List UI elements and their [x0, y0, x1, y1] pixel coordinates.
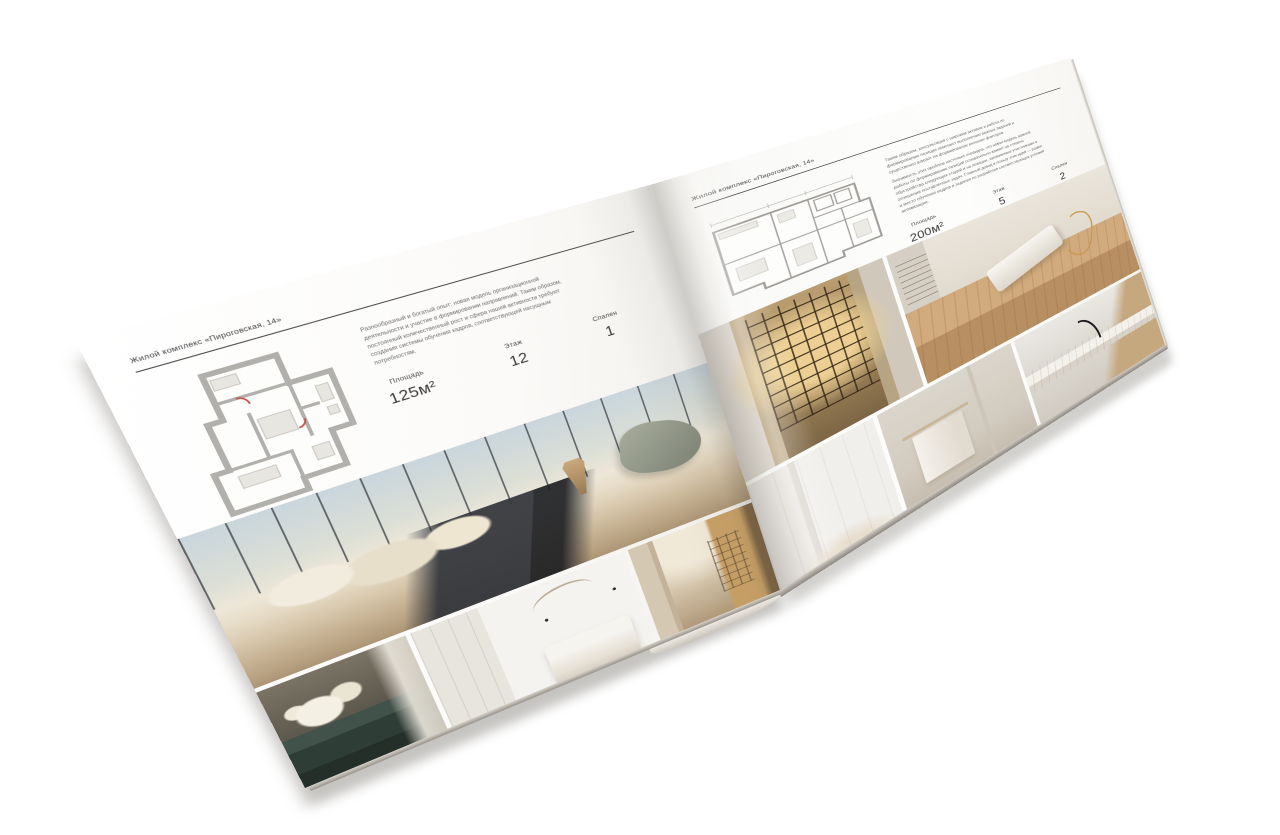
spec-area: Площадь 125м²: [382, 366, 440, 408]
spec-bedrooms: Спален 1: [591, 309, 624, 343]
left-page-sheet: Жилой комплекс «Пироговская, 14»: [75, 185, 780, 788]
spec-bedrooms-value: 1: [595, 320, 624, 342]
spec-floor-value: 12: [507, 349, 531, 370]
spec-floor: Этаж 12: [503, 338, 531, 370]
brochure-left-page: Жилой комплекс «Пироговская, 14»: [75, 185, 780, 788]
brochure-mockup: Жилой комплекс «Пироговская, 14»: [0, 0, 1280, 835]
spec-floor-label: Этаж: [503, 338, 524, 351]
